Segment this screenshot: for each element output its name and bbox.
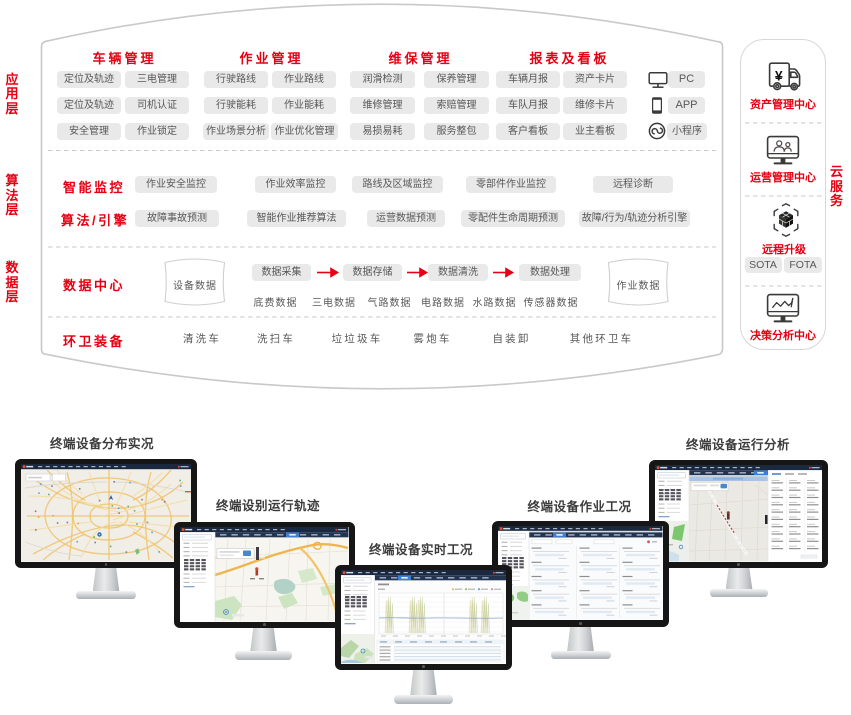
svg-text:¥: ¥: [775, 68, 783, 83]
